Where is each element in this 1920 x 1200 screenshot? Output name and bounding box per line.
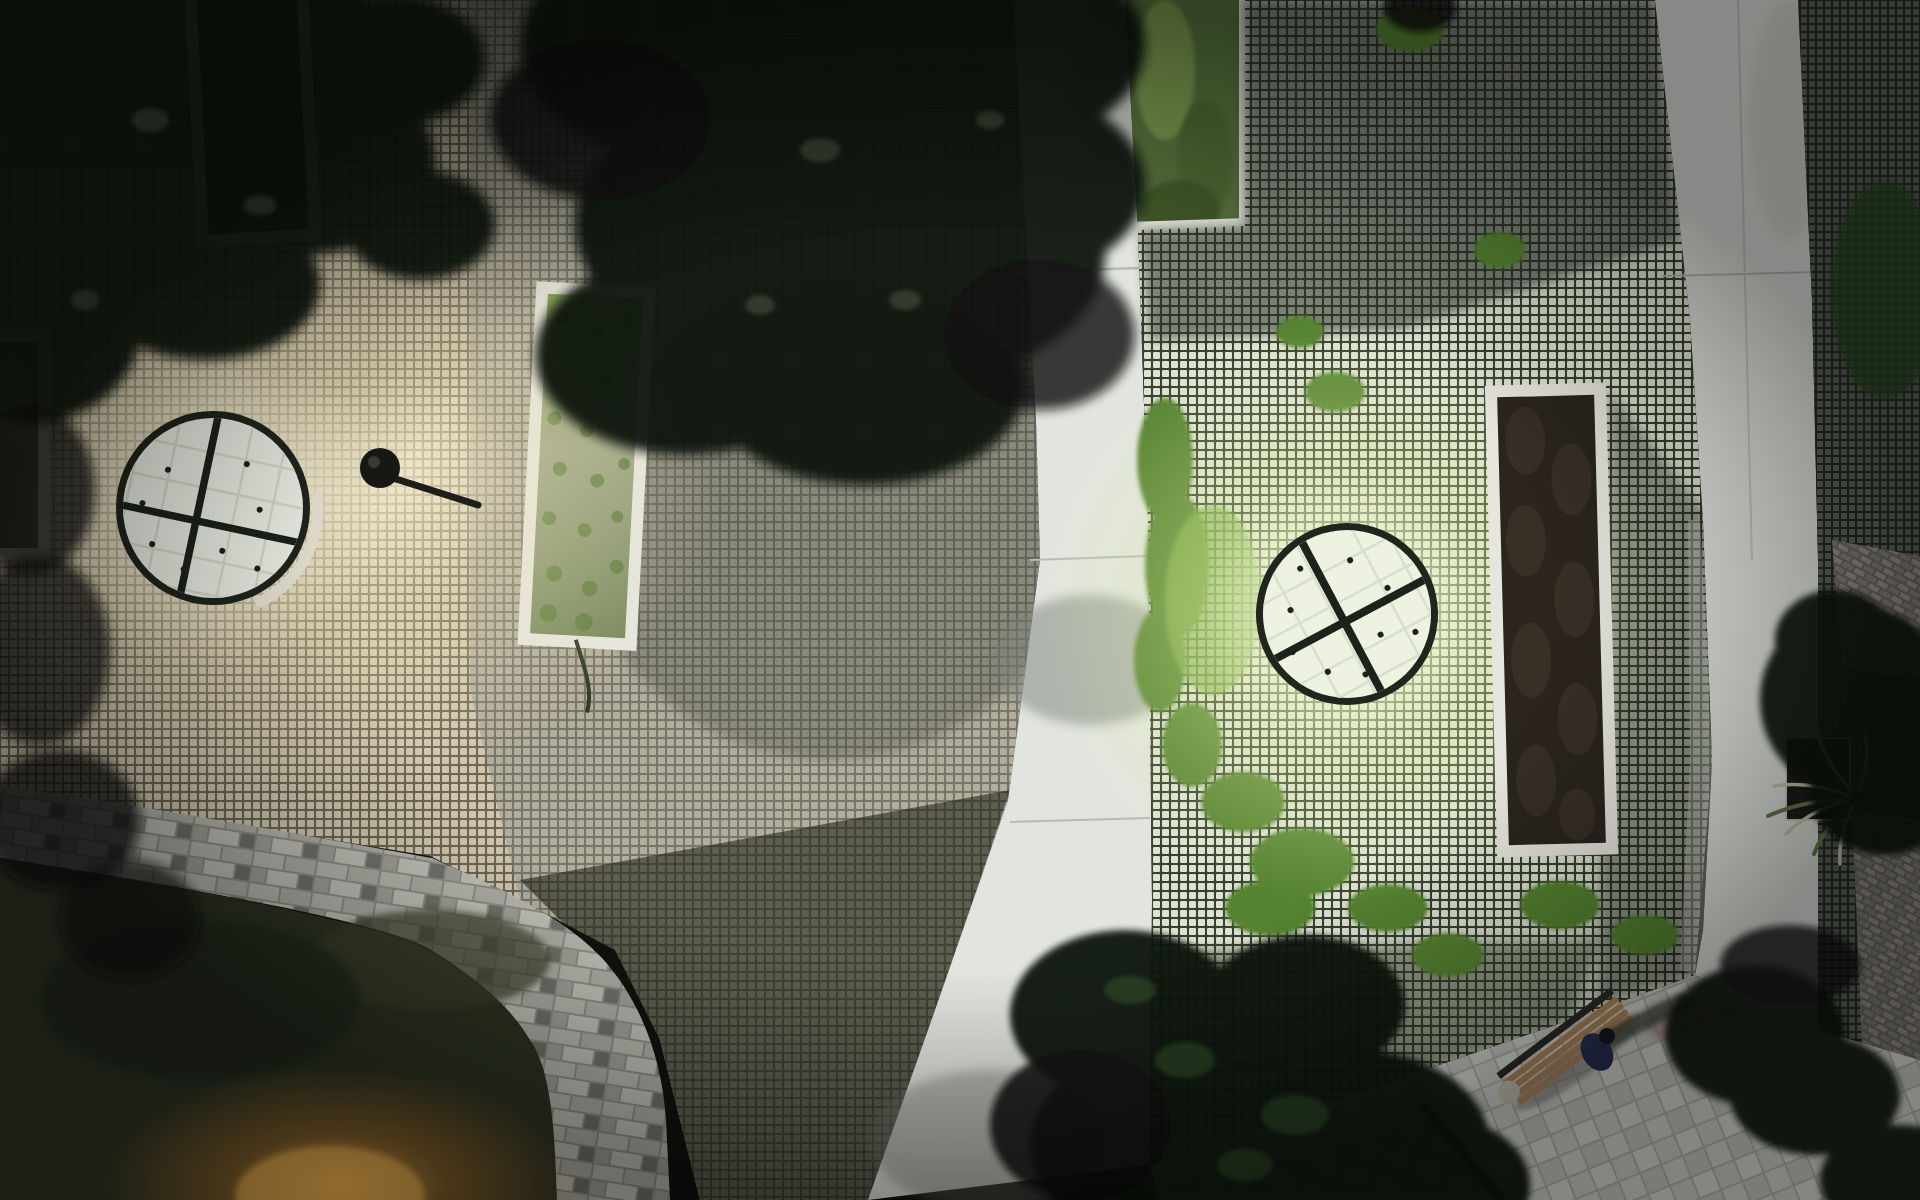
vignette bbox=[0, 0, 1920, 1200]
aerial-photo bbox=[0, 0, 1920, 1200]
courtyard-scene bbox=[0, 0, 1920, 1200]
